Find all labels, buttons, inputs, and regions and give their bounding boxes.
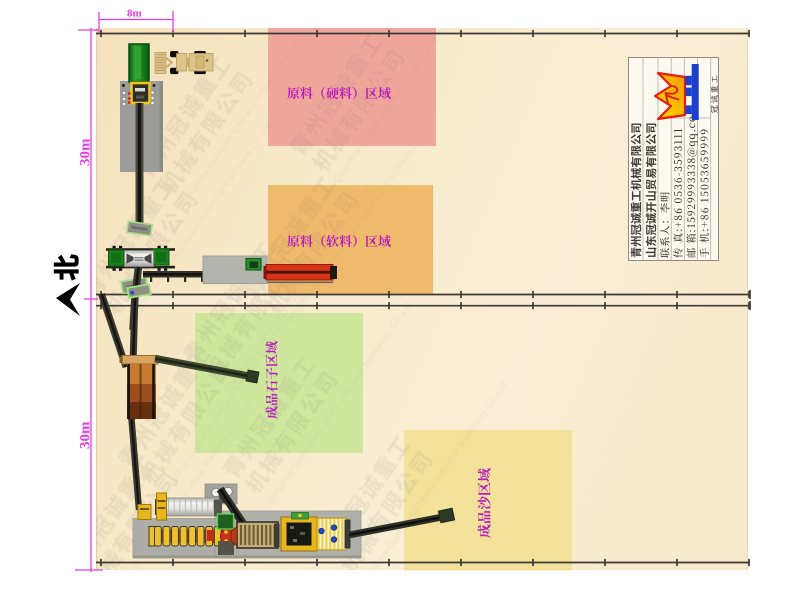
svg-text:30m: 30m — [78, 138, 94, 166]
svg-text:8m: 8m — [127, 8, 142, 20]
svg-text:30m: 30m — [78, 421, 94, 449]
